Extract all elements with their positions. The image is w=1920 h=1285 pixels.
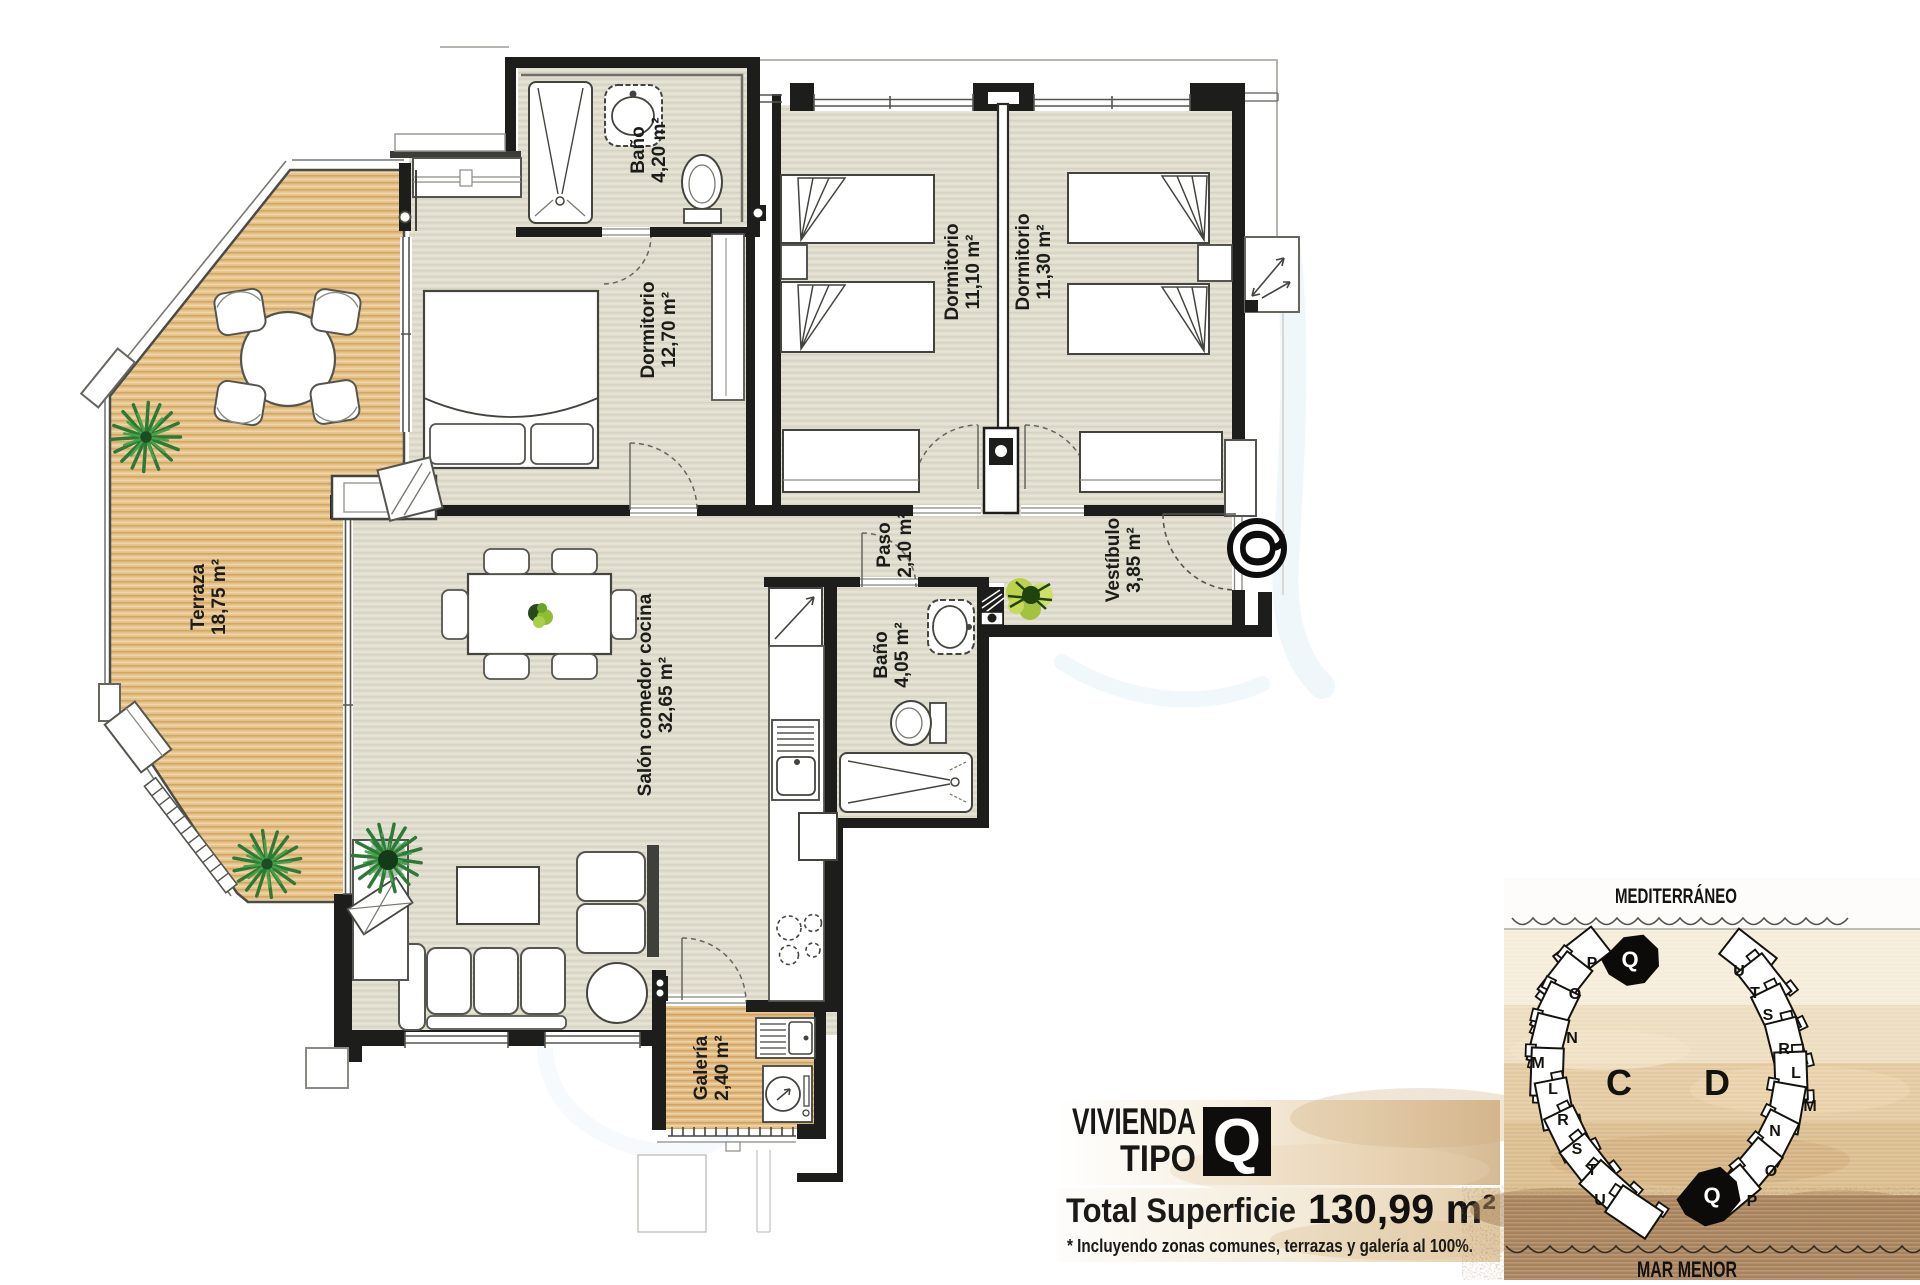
svg-text:S: S bbox=[1572, 1141, 1583, 1158]
svg-text:U: U bbox=[1594, 1192, 1606, 1209]
svg-text:N: N bbox=[1769, 1123, 1781, 1140]
svg-text:U: U bbox=[1733, 963, 1745, 980]
svg-text:O: O bbox=[1569, 986, 1581, 1003]
svg-text:Total Superficie: Total Superficie bbox=[1066, 1192, 1296, 1230]
svg-text:M: M bbox=[1803, 1098, 1816, 1115]
svg-text:Vestíbulo3,85 m²: Vestíbulo3,85 m² bbox=[1103, 518, 1145, 602]
svg-text:TIPO: TIPO bbox=[1120, 1138, 1196, 1179]
svg-text:R: R bbox=[1557, 1112, 1569, 1129]
svg-text:Q: Q bbox=[1213, 1107, 1261, 1176]
svg-text:Dormitorio12,70 m²: Dormitorio12,70 m² bbox=[638, 281, 680, 378]
svg-text:Q: Q bbox=[1230, 529, 1286, 568]
svg-text:L: L bbox=[1791, 1065, 1801, 1082]
svg-text:D: D bbox=[1704, 1062, 1730, 1103]
svg-text:S: S bbox=[1763, 1007, 1774, 1024]
svg-text:Dormitorio11,10 m²: Dormitorio11,10 m² bbox=[942, 223, 984, 320]
svg-text:Q: Q bbox=[1621, 947, 1638, 972]
svg-text:* Incluyendo zonas comunes, te: * Incluyendo zonas comunes, terrazas y g… bbox=[1067, 1236, 1473, 1256]
svg-text:Galería2,40 m²: Galería2,40 m² bbox=[691, 1035, 733, 1100]
svg-text:T: T bbox=[1750, 985, 1760, 1002]
svg-text:MEDITERRÁNEO: MEDITERRÁNEO bbox=[1615, 885, 1737, 908]
svg-text:M: M bbox=[1531, 1055, 1544, 1072]
svg-text:VIVIENDA: VIVIENDA bbox=[1072, 1101, 1196, 1142]
svg-text:Baño4,05 m²: Baño4,05 m² bbox=[871, 622, 913, 687]
svg-text:T: T bbox=[1587, 1162, 1597, 1179]
svg-text:MAR MENOR: MAR MENOR bbox=[1637, 1257, 1737, 1280]
svg-text:Dormitorio11,30 m²: Dormitorio11,30 m² bbox=[1013, 213, 1055, 310]
svg-text:P: P bbox=[1587, 955, 1598, 972]
svg-text:Terraza18,75 m²: Terraza18,75 m² bbox=[188, 559, 230, 635]
svg-text:O: O bbox=[1765, 1163, 1777, 1180]
svg-text:C: C bbox=[1606, 1062, 1632, 1103]
svg-text:R: R bbox=[1778, 1041, 1790, 1058]
svg-text:N: N bbox=[1566, 1030, 1578, 1047]
svg-text:L: L bbox=[1548, 1081, 1558, 1098]
svg-text:Q: Q bbox=[1703, 1183, 1720, 1208]
svg-text:Baño4,20 m²: Baño4,20 m² bbox=[628, 117, 670, 182]
svg-text:130,99 m²: 130,99 m² bbox=[1308, 1186, 1496, 1232]
svg-text:P: P bbox=[1747, 1193, 1758, 1210]
